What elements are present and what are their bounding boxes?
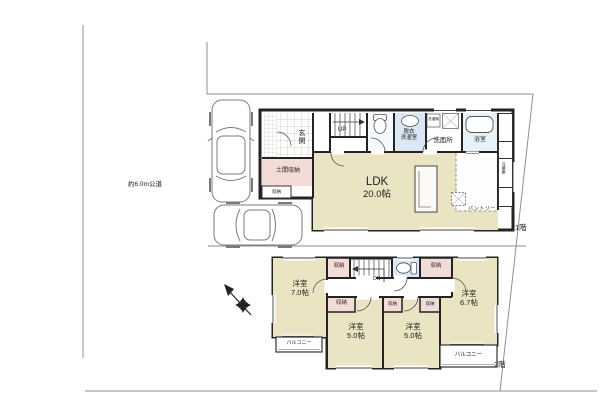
laundry-sink-icon: [402, 116, 419, 127]
senmenjo-label: 洗面所: [426, 137, 460, 144]
genkan-label: 玄関: [297, 129, 305, 157]
west1-label: 洋室 7.0帖: [280, 280, 320, 297]
closet-label: 収納: [421, 301, 440, 306]
ldk-name-label: LDK: [352, 176, 402, 189]
west4-size: 5.0帖: [395, 332, 431, 341]
floor-hatch-icon: [452, 193, 466, 206]
kitchen-counter: [415, 166, 437, 212]
kitchen-side-cabinets: [499, 114, 513, 207]
bath-label: 浴室: [468, 137, 492, 144]
road-label: 約6.0m公道: [122, 181, 168, 188]
compass-icon: [224, 284, 251, 315]
closet-label: 収納: [328, 263, 350, 269]
west4-label: 洋室 5.0帖: [395, 323, 431, 340]
bathtub-icon: [466, 117, 493, 133]
doma-storage-label: 土間収納: [266, 168, 310, 175]
laundry-room-label-line2: 洗濯室: [392, 135, 426, 141]
closet-label: 収納: [423, 263, 449, 269]
washer-label: 洗濯機: [428, 117, 440, 121]
car-icon: [214, 203, 302, 247]
floorplan-drawing: [0, 0, 600, 415]
balcony-left-label: バルコニー: [278, 341, 320, 347]
west3-label: 洋室 5.0帖: [338, 323, 374, 340]
west2-size: 6.7帖: [449, 299, 489, 308]
fridge-label: 冷蔵庫: [501, 162, 506, 186]
west3-size: 5.0帖: [338, 332, 374, 341]
entrance-porch-tiles: [262, 113, 277, 158]
room-west1: [273, 258, 327, 337]
stairs-down-label: DN: [373, 277, 380, 283]
laundry-room-label: 脱衣 洗濯室: [392, 129, 426, 142]
stairs-up-label: UP: [338, 127, 346, 134]
floorplan-page: 約6.0m公道 玄関 土間収納 収納 UP 脱衣 洗濯室 洗濯機 洗面所 浴室 …: [0, 0, 600, 415]
west1-size: 7.0帖: [280, 289, 320, 298]
closet-label: 収納: [329, 300, 354, 306]
small-closet-label: 収納: [264, 189, 289, 194]
pantry-label: パントリー: [468, 207, 496, 213]
closet-label: 収納: [384, 301, 402, 306]
ldk-size-label: 20.0帖: [352, 190, 402, 201]
balcony-right-label: バルコニー: [444, 352, 493, 358]
room-genkan: [277, 113, 313, 158]
car-icon: [208, 100, 254, 202]
toilet-icon: [397, 263, 417, 275]
washbasin-icon: [443, 114, 459, 129]
toilet-icon: [374, 115, 387, 134]
floor2-label: 2階: [494, 361, 506, 370]
west2-label: 洋室 6.7帖: [449, 290, 489, 307]
floor1-label: 1階: [515, 224, 527, 233]
